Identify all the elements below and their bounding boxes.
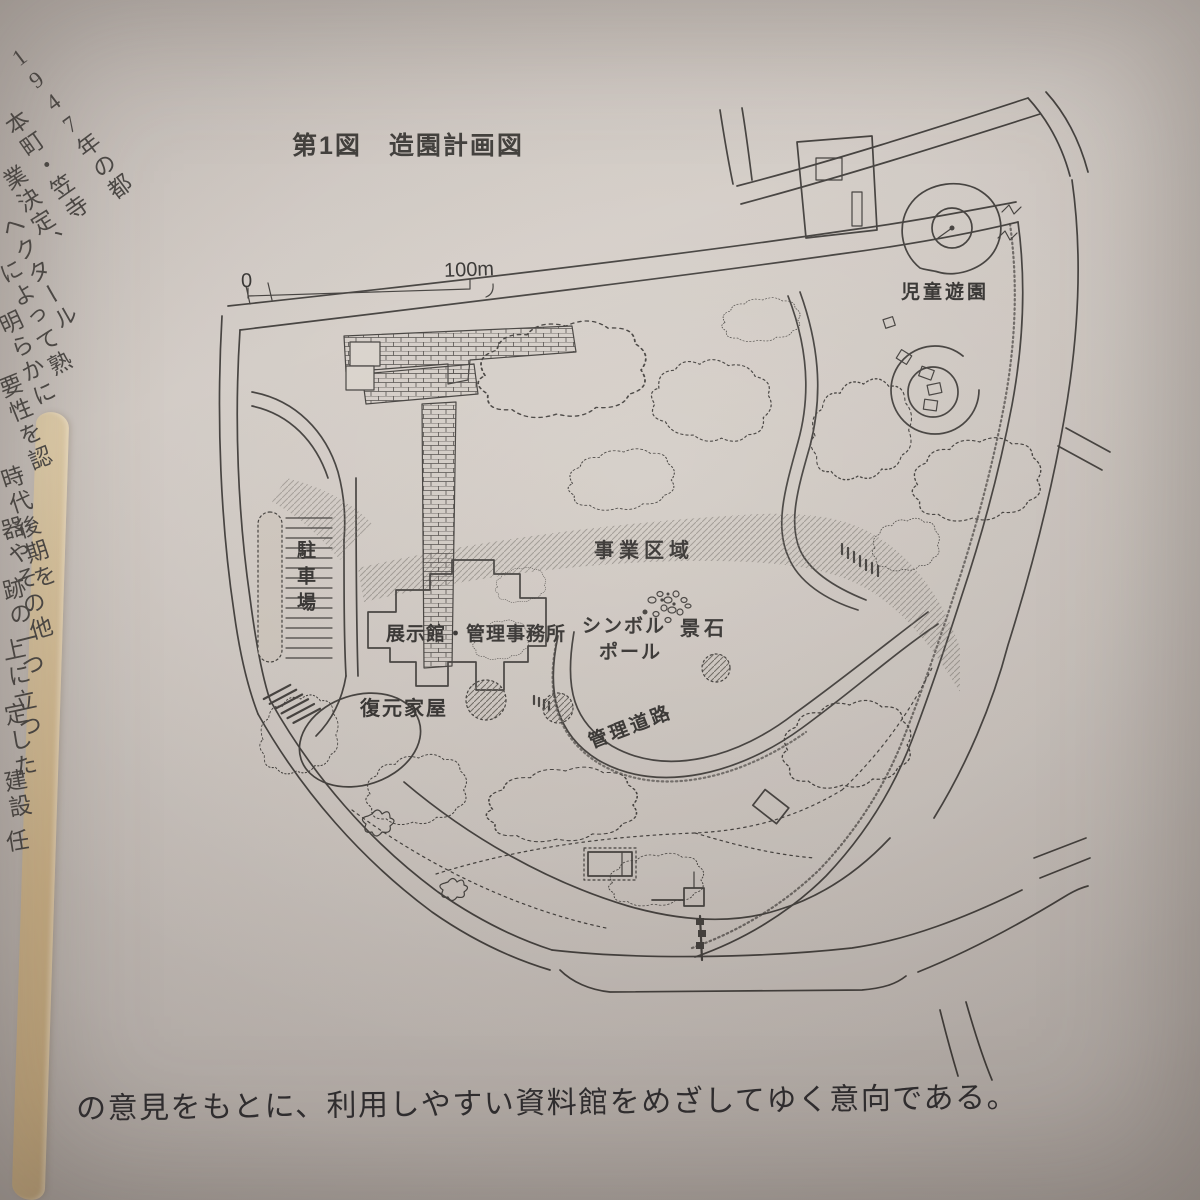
label-exhibition-hall-office: 展示館・管理事務所 bbox=[386, 619, 566, 646]
label-parking-lot: 駐車場 bbox=[291, 540, 318, 618]
map-label-layer: 第1図 造園計画図 0 100m 児童遊園 事業区域 駐車場 展示館・管理事務所… bbox=[0, 0, 1200, 1200]
label-management-road: 管理道路 bbox=[584, 697, 676, 754]
label-children-playground: 児童遊園 bbox=[901, 277, 989, 304]
label-symbol-pole-line1: シンボル bbox=[582, 611, 666, 638]
figure-title: 第1図 造園計画図 bbox=[292, 126, 524, 162]
body-text-line: の意見をもとに、利用しやすい資料館をめざしてゆく意向である。 bbox=[76, 1072, 1018, 1128]
scale-start-label: 0 bbox=[241, 270, 253, 293]
label-project-area: 事業区域 bbox=[594, 534, 694, 563]
label-symbol-pole-line2: ポール bbox=[599, 637, 662, 664]
book-page-photo: 1947年の都 本町・笠寺 業決定、 ヘクタール によって熟 明らかに 要性を認… bbox=[0, 0, 1200, 1200]
scale-end-label: 100m bbox=[444, 258, 495, 283]
label-restored-house: 復元家屋 bbox=[360, 692, 448, 721]
label-landscape-stones: 景石 bbox=[680, 612, 728, 641]
